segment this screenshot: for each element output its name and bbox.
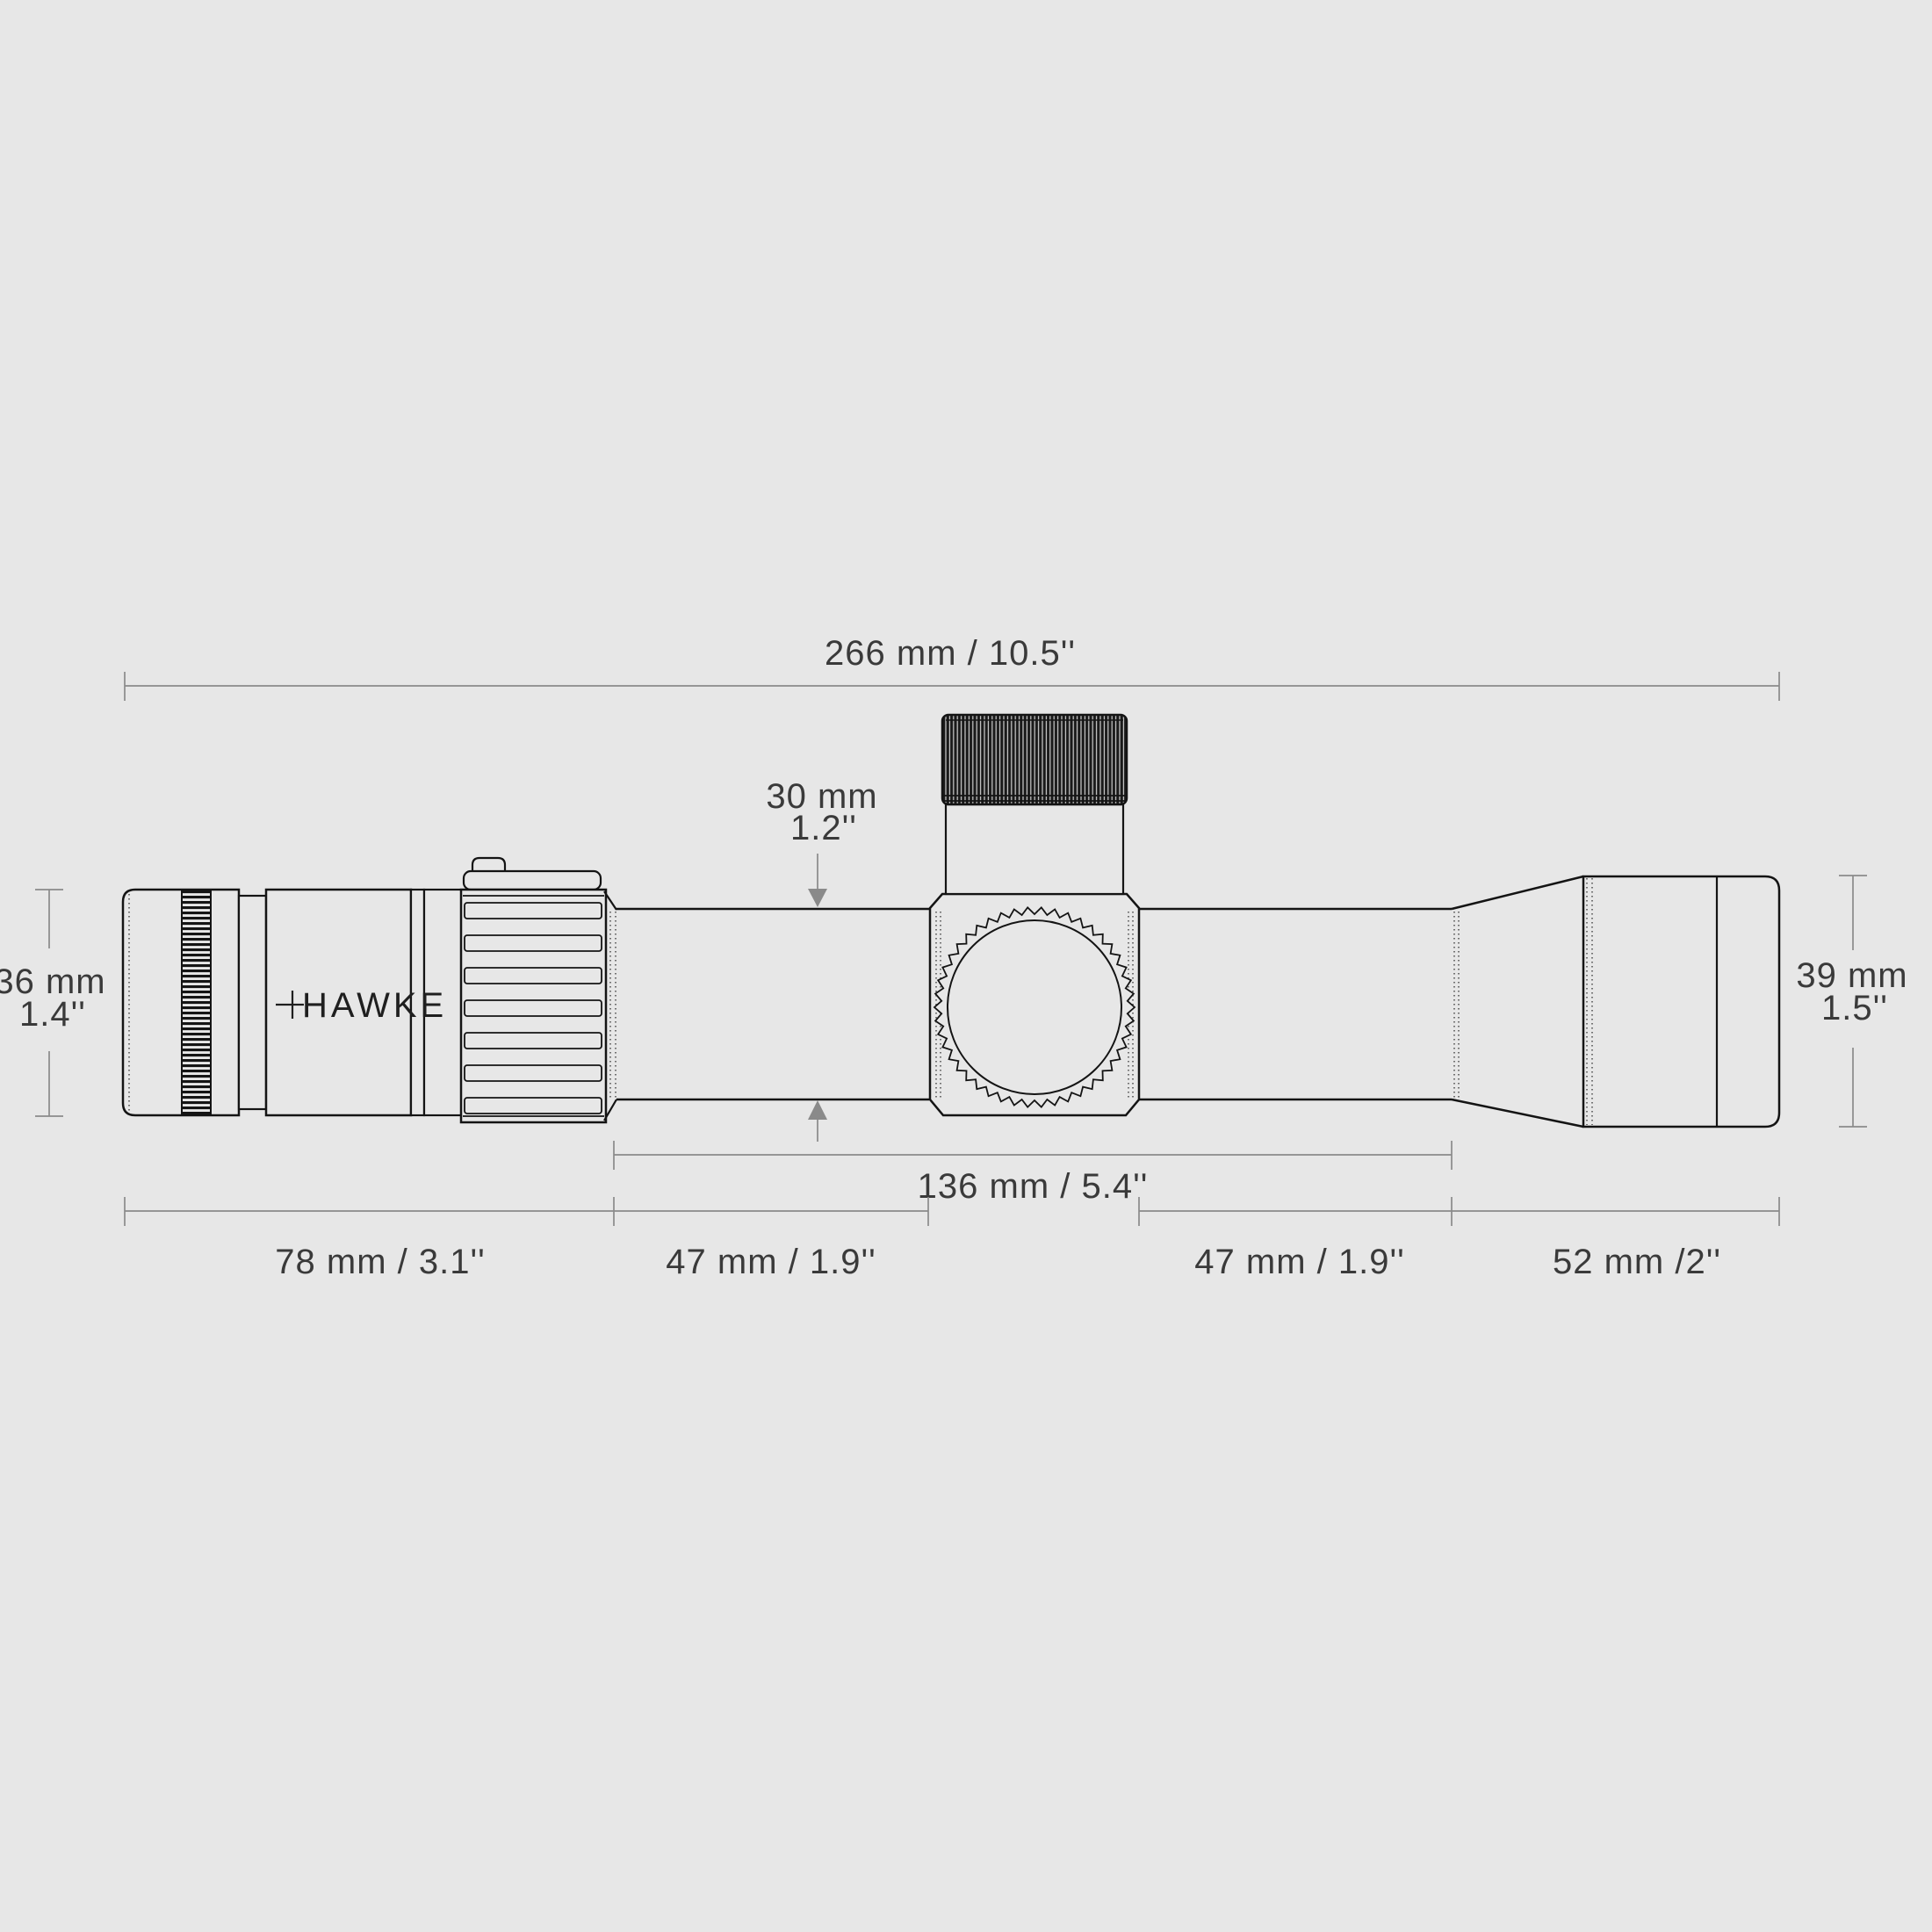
brand-logo-text: HAWKE	[302, 986, 447, 1025]
scope-drawing: HAWKE	[123, 715, 1779, 1127]
zoom-ring-flange	[464, 871, 601, 890]
dim-label-eyepiece-diameter-in: 1.4''	[19, 995, 86, 1034]
zoom-ring-tab	[472, 858, 505, 872]
dim-label-tube-diameter-in: 1.2''	[790, 809, 857, 847]
hawke-logo: HAWKE	[276, 986, 447, 1025]
dim-label-tube-rear-length: 47 mm / 1.9''	[666, 1243, 876, 1281]
arrow-down-icon	[808, 889, 827, 907]
dim-label-overall-length: 266 mm / 10.5''	[825, 634, 1076, 673]
scope-dimension-diagram: HAWKE	[0, 0, 1932, 1932]
dim-tube-diameter: 30 mm 1.2''	[766, 777, 877, 1142]
diagram-page: HAWKE	[0, 0, 1932, 1932]
dim-label-eyepiece-length: 78 mm / 3.1''	[275, 1243, 485, 1281]
dim-objective-diameter: 39 mm 1.5''	[1796, 876, 1907, 1127]
eyepiece-collar	[239, 896, 266, 1109]
dim-tube-length: 136 mm / 5.4''	[614, 1141, 1452, 1206]
dim-label-objective-diameter-in: 1.5''	[1821, 989, 1888, 1027]
dim-label-tube-front-length: 47 mm / 1.9''	[1194, 1243, 1404, 1281]
eyepiece-knurl-ring	[182, 890, 211, 1115]
turret-cap-knurled	[942, 715, 1127, 804]
dim-segments: 78 mm / 3.1'' 47 mm / 1.9'' 47 mm / 1.9'…	[125, 1197, 1779, 1281]
dim-eyepiece-diameter: 36 mm 1.4''	[0, 890, 106, 1116]
dim-label-objective-length: 52 mm /2''	[1553, 1243, 1721, 1281]
dim-label-tube-length: 136 mm / 5.4''	[918, 1167, 1149, 1206]
dim-overall-length: 266 mm / 10.5''	[125, 634, 1779, 701]
objective-barrel	[1583, 876, 1779, 1127]
turret-neck	[946, 804, 1123, 894]
objective-bell-taper	[1452, 876, 1583, 1127]
arrow-up-icon	[808, 1100, 827, 1120]
